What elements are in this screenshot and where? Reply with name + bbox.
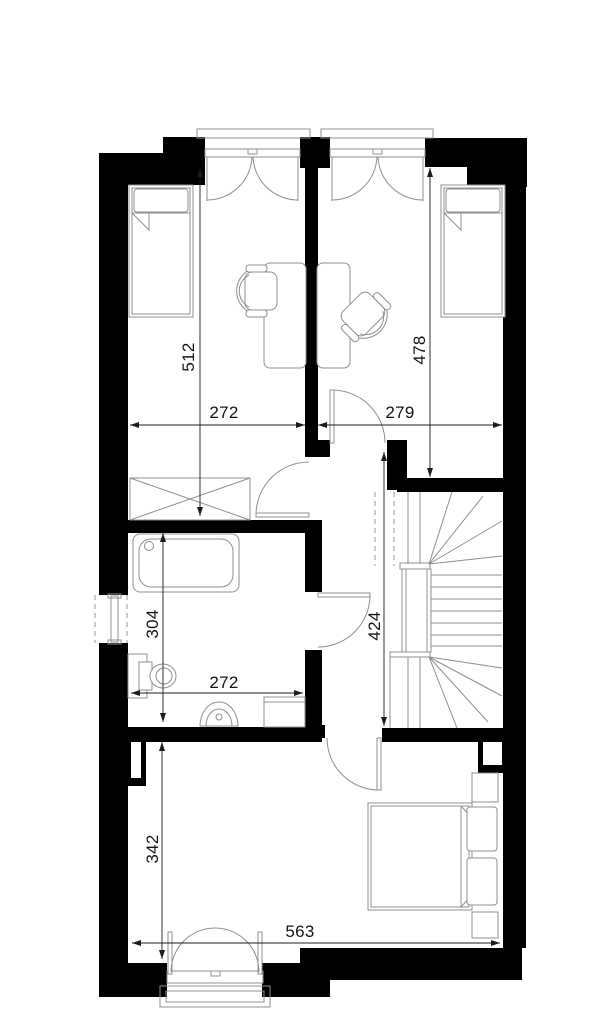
swing-door-icon <box>256 462 309 517</box>
casement-window-icon <box>197 129 310 201</box>
dim-bedroom-bottom-width: 563 <box>270 922 330 942</box>
winder-staircase-icon <box>375 492 502 728</box>
wall-niche <box>131 742 141 778</box>
single-bed-icon <box>441 185 505 317</box>
office-chair-icon <box>237 265 277 317</box>
cabinet-icon <box>264 697 305 727</box>
side-window-icon <box>95 594 127 644</box>
double-bed-icon <box>368 803 497 910</box>
dim-bedroom-bottom-depth: 342 <box>143 819 163 879</box>
nightstand-icon <box>472 912 498 938</box>
dim-bedroom-right-depth: 478 <box>410 320 430 380</box>
wardrobe-icon <box>130 478 250 520</box>
floor-plan: 512 478 272 279 304 272 424 342 563 <box>0 0 610 1024</box>
dim-bedroom-right-width: 279 <box>370 403 430 423</box>
casement-window-icon <box>321 129 433 201</box>
bathtub-icon <box>133 534 239 592</box>
dim-bedroom-left-depth: 512 <box>179 327 199 387</box>
toilet-icon <box>128 654 176 698</box>
dim-bedroom-left-width: 272 <box>194 403 254 423</box>
wall-niche <box>483 742 502 765</box>
swing-door-icon <box>327 738 381 790</box>
single-bed-icon <box>129 185 193 317</box>
nightstand-icon <box>472 773 498 802</box>
dim-bathroom-depth: 304 <box>143 594 163 654</box>
swing-door-icon <box>318 593 370 647</box>
double-entry-door-icon <box>160 928 270 1007</box>
washbasin-icon <box>200 702 238 726</box>
dim-stair-hall-depth: 424 <box>365 596 385 656</box>
dim-bathroom-width: 272 <box>194 673 254 693</box>
floor-plan-drawing <box>0 0 610 1024</box>
